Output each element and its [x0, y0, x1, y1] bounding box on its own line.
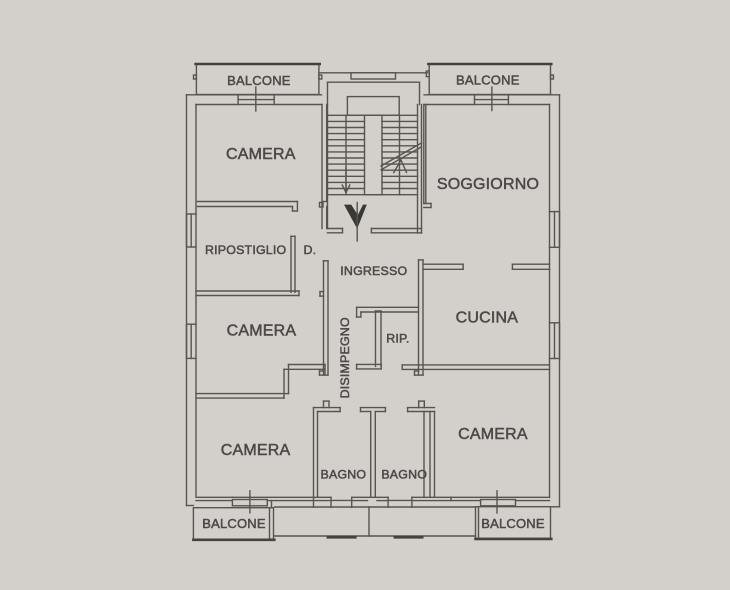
svg-text:CAMERA: CAMERA: [227, 322, 297, 339]
svg-text:DISIMPEGNO: DISIMPEGNO: [338, 317, 352, 398]
svg-text:RIP.: RIP.: [386, 331, 409, 345]
svg-text:INGRESSO: INGRESSO: [340, 264, 407, 278]
svg-text:BALCONE: BALCONE: [481, 516, 545, 531]
svg-text:D.: D.: [304, 243, 317, 257]
svg-text:BAGNO: BAGNO: [321, 467, 367, 481]
svg-text:BALCONE: BALCONE: [227, 73, 291, 88]
svg-text:BALCONE: BALCONE: [456, 72, 520, 87]
svg-text:BALCONE: BALCONE: [202, 516, 266, 531]
svg-text:CUCINA: CUCINA: [456, 310, 519, 327]
svg-text:CAMERA: CAMERA: [221, 442, 291, 459]
svg-text:SOGGIORNO: SOGGIORNO: [437, 176, 539, 193]
svg-text:CAMERA: CAMERA: [458, 426, 528, 443]
svg-text:RIPOSTIGLIO: RIPOSTIGLIO: [205, 243, 287, 257]
svg-text:CAMERA: CAMERA: [226, 146, 296, 163]
svg-text:BAGNO: BAGNO: [381, 467, 427, 481]
